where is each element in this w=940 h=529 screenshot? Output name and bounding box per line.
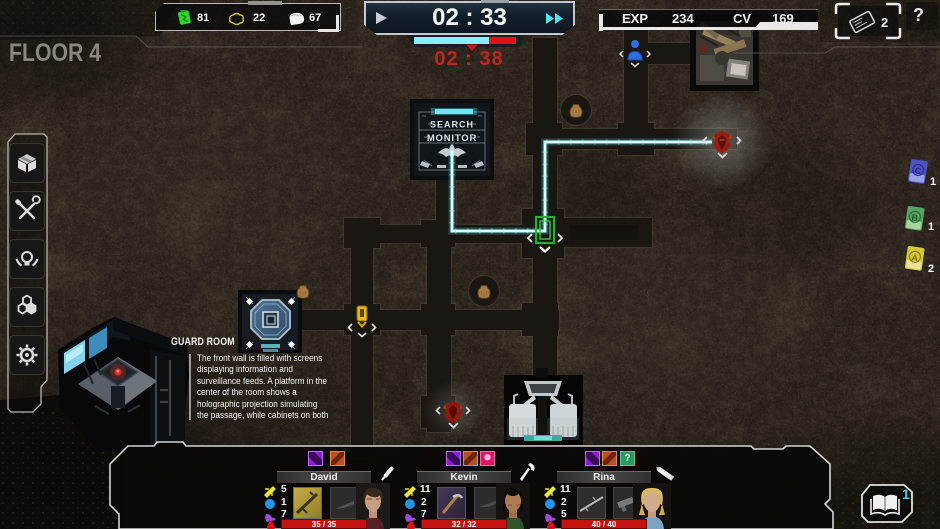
svg-text:1: 1 <box>930 176 936 188</box>
svg-text:SEARCH: SEARCH <box>430 120 474 130</box>
svg-text:MONITOR: MONITOR <box>427 133 477 144</box>
svg-text:2: 2 <box>928 263 934 275</box>
svg-text:1: 1 <box>928 221 934 233</box>
svg-text:1: 1 <box>902 486 910 502</box>
svg-text:2: 2 <box>881 15 888 30</box>
